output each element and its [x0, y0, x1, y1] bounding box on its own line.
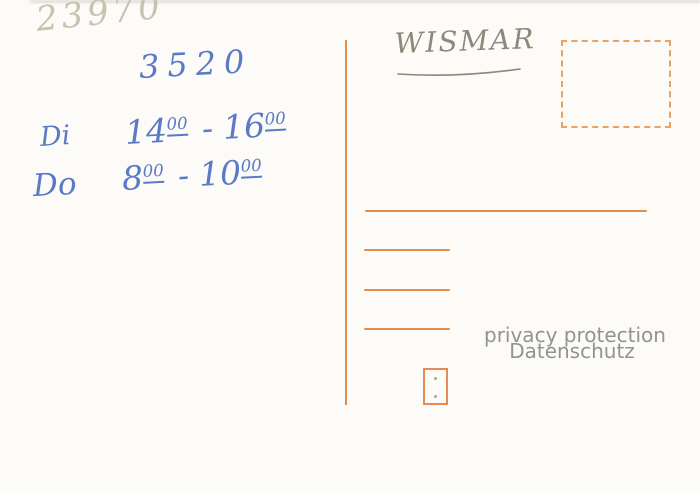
- from-minutes: 00: [166, 114, 188, 137]
- divider-line: [345, 40, 347, 405]
- schedule-time-di: 1400-1600: [124, 105, 287, 152]
- address-line-2: [364, 249, 450, 251]
- address-line-1: [365, 210, 647, 212]
- pencil-city-name: WISMAR: [394, 22, 536, 60]
- privacy-watermark-line2: Datenschutz: [484, 343, 660, 359]
- from-minutes: 00: [142, 161, 164, 184]
- from-hour: 14: [124, 111, 168, 152]
- time-separator: -: [201, 108, 214, 148]
- postcard-back: 23970 3520 Di 1400-1600 Do 800-1000 WISM…: [0, 0, 700, 491]
- pencil-underline: [396, 66, 524, 80]
- address-line-4: [364, 328, 450, 330]
- postal-code-box: [423, 368, 448, 405]
- schedule-day-do: Do: [32, 166, 77, 204]
- code-box-dot: [434, 377, 437, 380]
- schedule-time-do: 800-1000: [121, 152, 263, 198]
- address-line-3: [364, 289, 450, 291]
- to-hour: 16: [222, 106, 266, 147]
- schedule-day-di: Di: [39, 120, 71, 153]
- pencil-postal-code: 23970: [34, 0, 166, 40]
- time-separator: -: [177, 155, 190, 195]
- to-minutes: 00: [240, 156, 262, 179]
- from-hour: 8: [121, 158, 144, 198]
- handwritten-number: 3520: [138, 42, 253, 86]
- to-minutes: 00: [264, 109, 286, 132]
- to-hour: 10: [198, 153, 242, 194]
- stamp-box: [561, 40, 671, 128]
- code-box-dot: [434, 395, 437, 398]
- privacy-watermark: privacy protection Datenschutz: [484, 327, 660, 359]
